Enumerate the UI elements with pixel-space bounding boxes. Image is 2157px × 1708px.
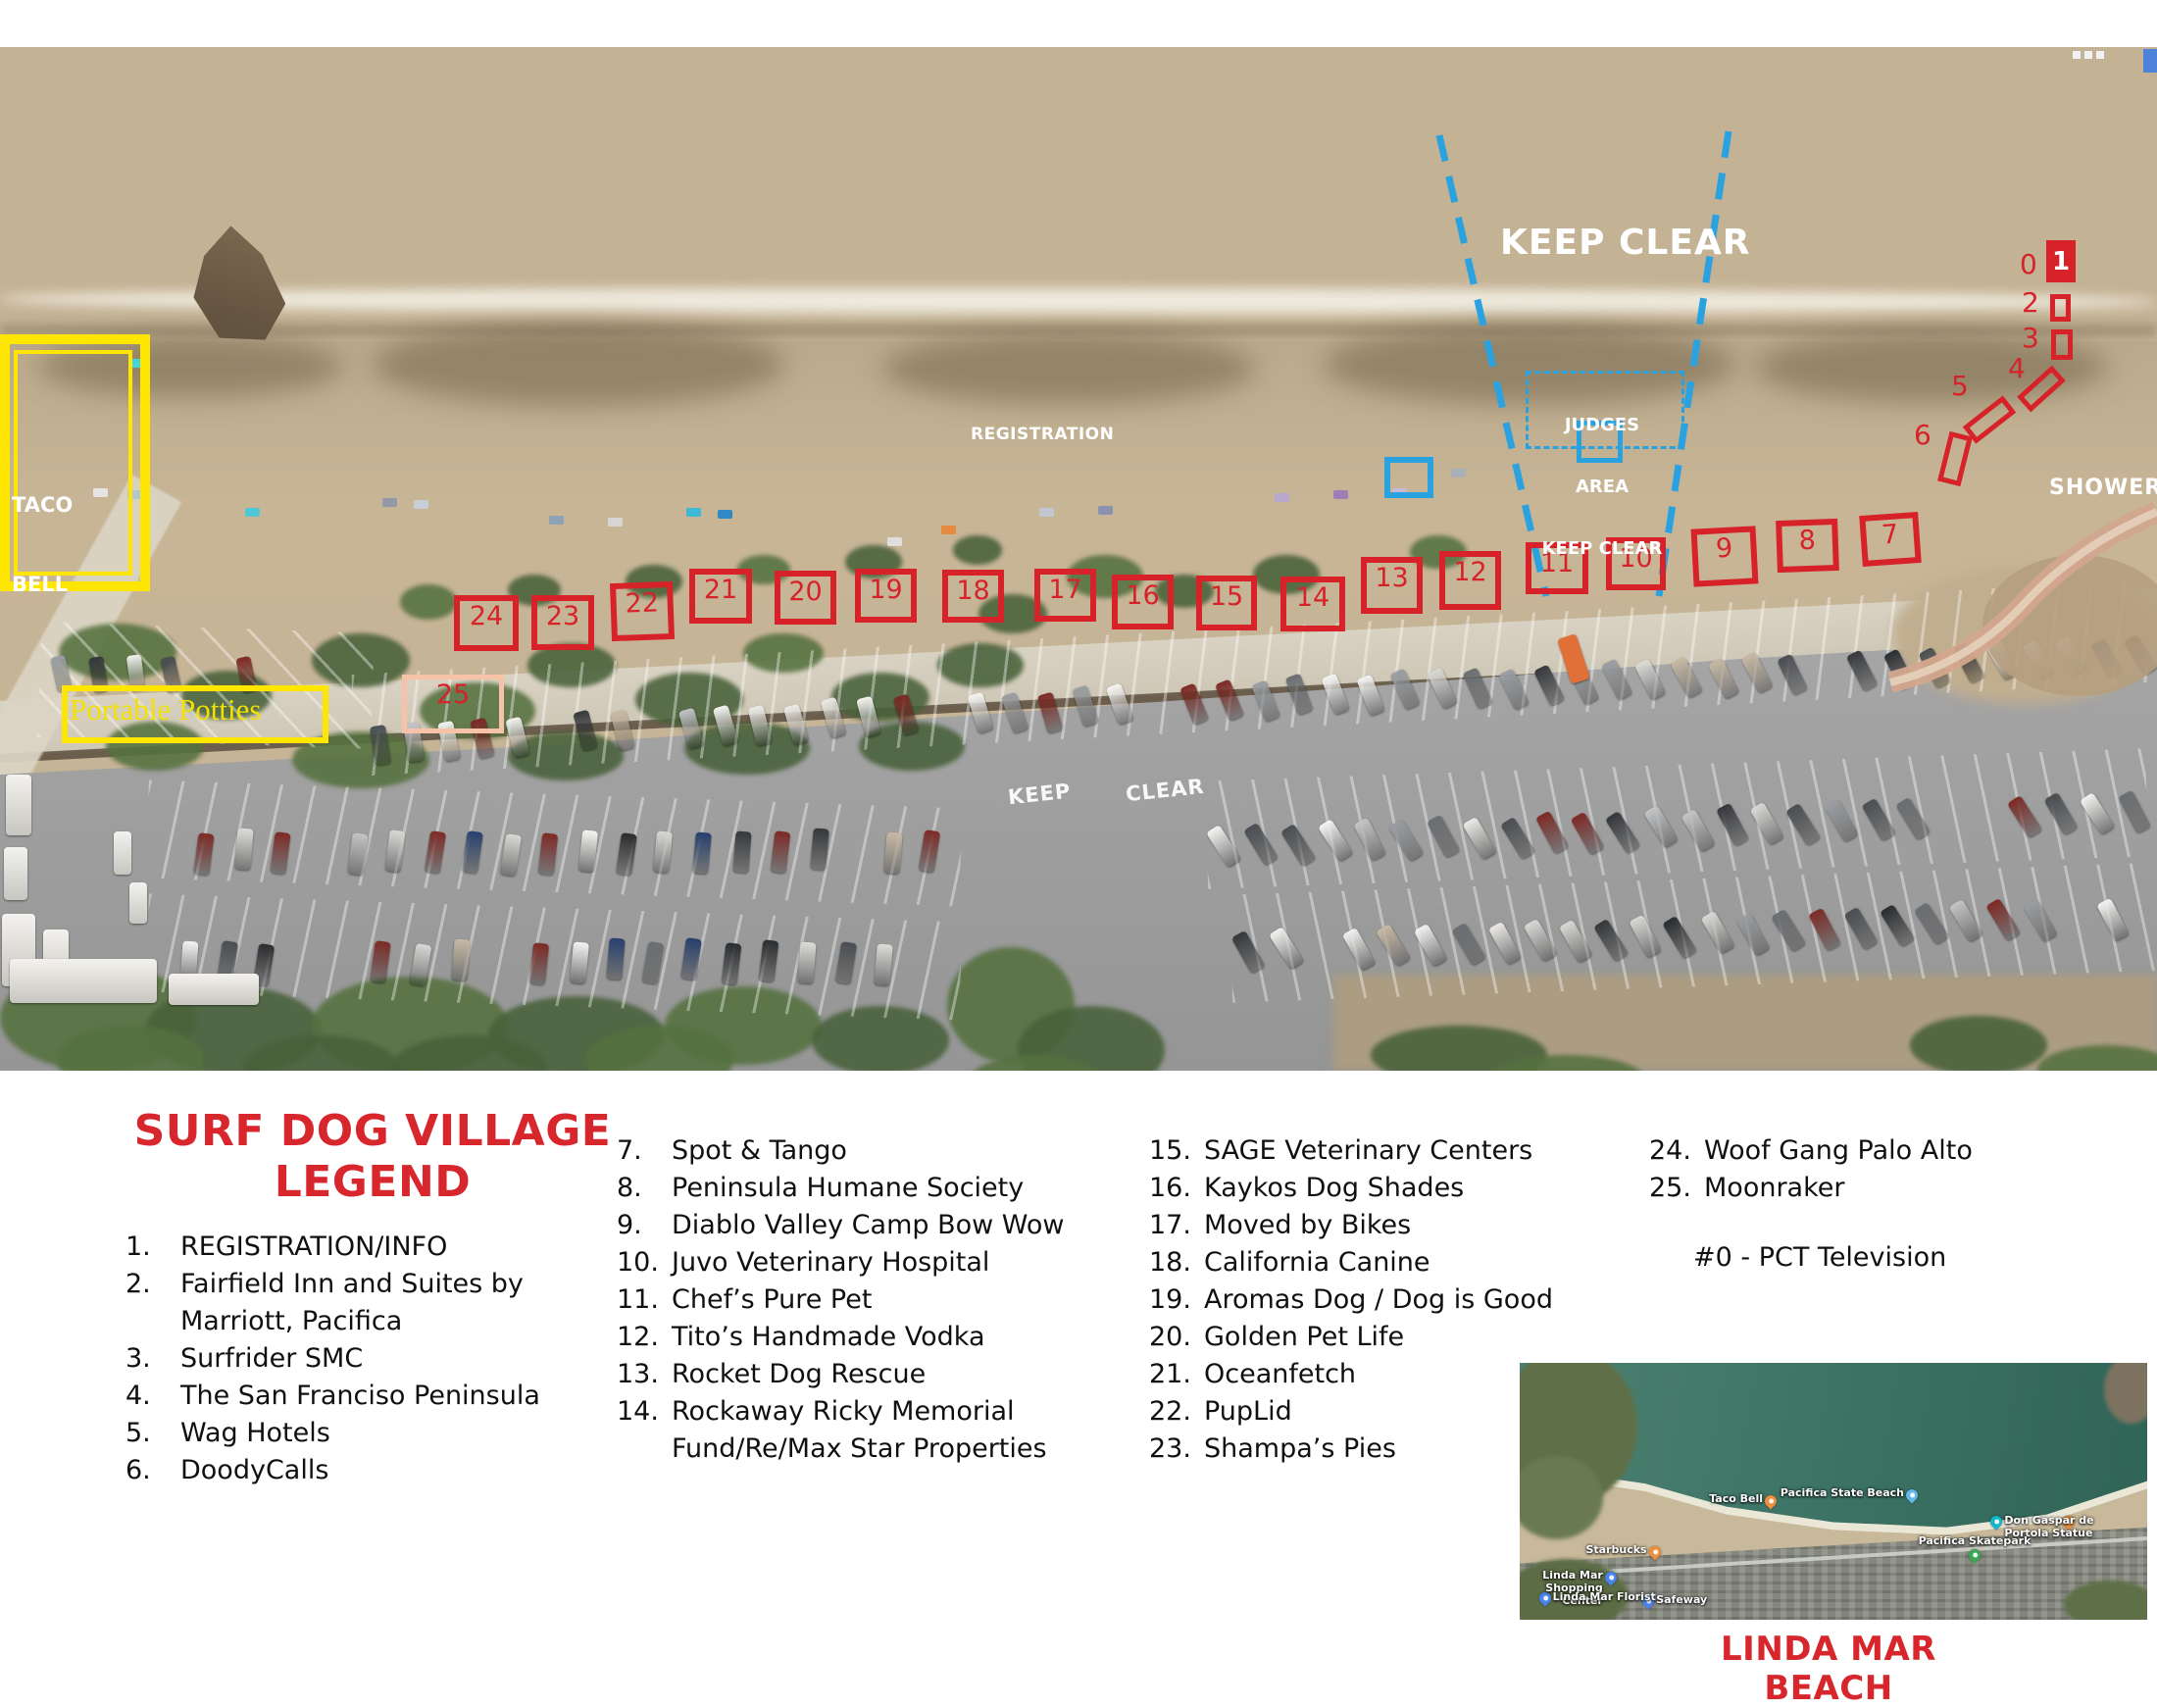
booth-number: 24 — [470, 603, 503, 645]
legend-column-2: 7.Spot & Tango8.Peninsula Humane Society… — [617, 1132, 1078, 1468]
beach-aerial-photo: Portable Potties KEEP CLEAR JUDGES AREA … — [0, 47, 2157, 1071]
map-pin-label-starbucks: Starbucks — [1585, 1543, 1646, 1556]
booth-box-9: 9 — [1691, 526, 1759, 586]
booth-box-8: 8 — [1776, 519, 1839, 573]
booth-box-22: 22 — [610, 581, 675, 641]
inset-map: Taco BellPacifica State BeachDon Gaspar … — [1520, 1363, 2147, 1620]
booth-number: 20 — [788, 578, 822, 619]
booth-number: 25 — [436, 681, 470, 728]
booth-box-7: 7 — [1859, 512, 1921, 567]
legend-item: 8.Peninsula Humane Society — [617, 1170, 1078, 1207]
booth-box-17: 17 — [1034, 569, 1096, 622]
booth-box-15: 15 — [1196, 576, 1257, 630]
legend-item: 15.SAGE Veterinary Centers — [1149, 1132, 1630, 1170]
booth-label-6: 6 — [1914, 422, 1931, 449]
booth-number: 12 — [1453, 559, 1486, 604]
judges-line-1: JUDGES — [1526, 415, 1679, 435]
booth-number: 7 — [1881, 521, 1900, 559]
judges-line-2: AREA — [1526, 477, 1679, 497]
map-pin-don-gaspar-de-portola-statue-icon — [1988, 1513, 2005, 1530]
registration-booth-box — [1384, 457, 1433, 498]
inset-pin-layer: Taco BellPacifica State BeachDon Gaspar … — [1520, 1363, 2147, 1620]
booth-label-0: 0 — [2020, 251, 2037, 278]
inset-caption: LINDA MAR BEACH — [1667, 1630, 1990, 1708]
booth-box-16: 16 — [1112, 575, 1174, 629]
map-pin-starbucks-icon — [1646, 1544, 1663, 1561]
map-pin-label-taco-bell: Taco Bell — [1709, 1492, 1763, 1505]
booth-box-marker — [2051, 329, 2073, 360]
legend-item: 6.DoodyCalls — [125, 1452, 584, 1489]
taco-line-1: TACO — [12, 492, 73, 519]
booth-number: 23 — [546, 603, 579, 644]
portable-potties-label: Portable Potties — [70, 692, 261, 728]
legend-item: 25.Moonraker — [1649, 1170, 2110, 1207]
keep-clear-label: KEEP CLEAR — [1500, 223, 1751, 263]
booth-box-20: 20 — [775, 571, 836, 625]
booth-box-1: 1 — [2046, 240, 2076, 282]
legend-item: 11.Chef’s Pure Pet — [617, 1281, 1078, 1319]
booth-box-19: 19 — [855, 569, 917, 623]
legend-item: 14.Rockaway Ricky Memorial Fund/Re/Max S… — [617, 1393, 1078, 1468]
booth-box-21: 21 — [689, 569, 752, 624]
legend-item: 4.The San Franciso Peninsula — [125, 1378, 584, 1415]
booth-number: 13 — [1375, 565, 1408, 608]
legend-note-pct: #0 - PCT Television — [1693, 1242, 1946, 1273]
legend-title: SURF DOG VILLAGE LEGEND — [118, 1106, 627, 1208]
booth-number: 15 — [1210, 583, 1243, 625]
showers-label: SHOWERS — [2049, 476, 2157, 500]
blue-square-tile-icon[interactable] — [2143, 49, 2157, 73]
booth-label-4: 4 — [2008, 355, 2026, 382]
booth-number: 16 — [1126, 582, 1159, 624]
legend-column-4: 24.Woof Gang Palo Alto25.Moonraker — [1649, 1132, 2110, 1207]
booth-number: 18 — [956, 578, 989, 617]
judges-area-label: JUDGES AREA KEEP CLEAR — [1526, 374, 1679, 600]
booth-number: 9 — [1715, 535, 1734, 580]
booth-label-2: 2 — [2022, 289, 2039, 317]
legend-item: 24.Woof Gang Palo Alto — [1649, 1132, 2110, 1170]
legend-item: 20.Golden Pet Life — [1149, 1319, 1630, 1356]
legend-item: 19.Aromas Dog / Dog is Good — [1149, 1281, 1630, 1319]
legend-item: 3.Surfrider SMC — [125, 1340, 584, 1378]
legend-item: 17.Moved by Bikes — [1149, 1207, 1630, 1244]
registration-label: REGISTRATION — [971, 425, 1114, 444]
map-pin-pacifica-skatepark-icon — [1967, 1546, 1983, 1563]
map-pin-label-pacifica-skatepark: Pacifica Skatepark — [1906, 1534, 2043, 1547]
legend-item: 12.Tito’s Handmade Vodka — [617, 1319, 1078, 1356]
legend-title-line-1: SURF DOG VILLAGE — [118, 1106, 627, 1157]
legend-item: 5.Wag Hotels — [125, 1415, 584, 1452]
booth-box-23: 23 — [531, 595, 594, 650]
booth-label-5: 5 — [1951, 373, 1969, 400]
booth-box-25: 25 — [402, 675, 504, 733]
map-pin-linda-mar-shopping-center-icon — [1602, 1570, 1619, 1586]
taco-line-2: BELL — [12, 572, 73, 598]
taco-bell-label: TACO BELL — [12, 439, 73, 651]
booth-number: 8 — [1798, 527, 1817, 567]
booth-annotation-layer: 2423222120191817161514131211109872510234… — [0, 47, 2157, 1071]
booth-number: 19 — [869, 577, 902, 617]
booth-box-marker — [1937, 431, 1973, 486]
map-pin-taco-bell-icon — [1763, 1492, 1780, 1509]
legend-item: 13.Rocket Dog Rescue — [617, 1356, 1078, 1393]
judges-line-3: KEEP CLEAR — [1526, 538, 1679, 559]
legend-item: 1.REGISTRATION/INFO — [125, 1229, 584, 1266]
booth-number: 22 — [625, 589, 660, 634]
booth-box-marker — [2050, 294, 2071, 322]
booth-number: 14 — [1296, 584, 1329, 626]
legend-title-line-2: LEGEND — [118, 1157, 627, 1208]
map-pin-label-pacifica-state-beach: Pacifica State Beach — [1781, 1486, 1904, 1499]
booth-box-12: 12 — [1439, 551, 1501, 610]
legend-item: 7.Spot & Tango — [617, 1132, 1078, 1170]
booth-box-13: 13 — [1361, 557, 1423, 614]
overflow-dots-icon[interactable] — [2073, 51, 2106, 59]
legend-item: 10.Juvo Veterinary Hospital — [617, 1244, 1078, 1281]
booth-box-24: 24 — [454, 595, 519, 651]
legend-column-1: 1.REGISTRATION/INFO2.Fairfield Inn and S… — [125, 1229, 584, 1489]
legend-item: 9.Diablo Valley Camp Bow Wow — [617, 1207, 1078, 1244]
legend-item: 16.Kaykos Dog Shades — [1149, 1170, 1630, 1207]
surf-dog-village-map-page: { "top_bar": { "overflow_icon": "three-d… — [0, 0, 2157, 1667]
booth-number: 1 — [2052, 249, 2070, 275]
booth-label-3: 3 — [2022, 325, 2039, 352]
booth-number: 21 — [704, 577, 737, 618]
booth-box-14: 14 — [1280, 577, 1345, 631]
booth-number: 17 — [1048, 577, 1081, 616]
booth-box-18: 18 — [942, 570, 1004, 623]
portable-potties-box: Portable Potties — [62, 685, 328, 743]
legend-item: 2.Fairfield Inn and Suites by Marriott, … — [125, 1266, 584, 1340]
map-pin-label-safeway: Safeway — [1656, 1593, 1707, 1606]
map-pin-label-linda-mar-florist: Linda Mar Florist — [1553, 1590, 1656, 1603]
map-pin-pacifica-state-beach-icon — [1904, 1487, 1921, 1504]
legend-item: 18.California Canine — [1149, 1244, 1630, 1281]
